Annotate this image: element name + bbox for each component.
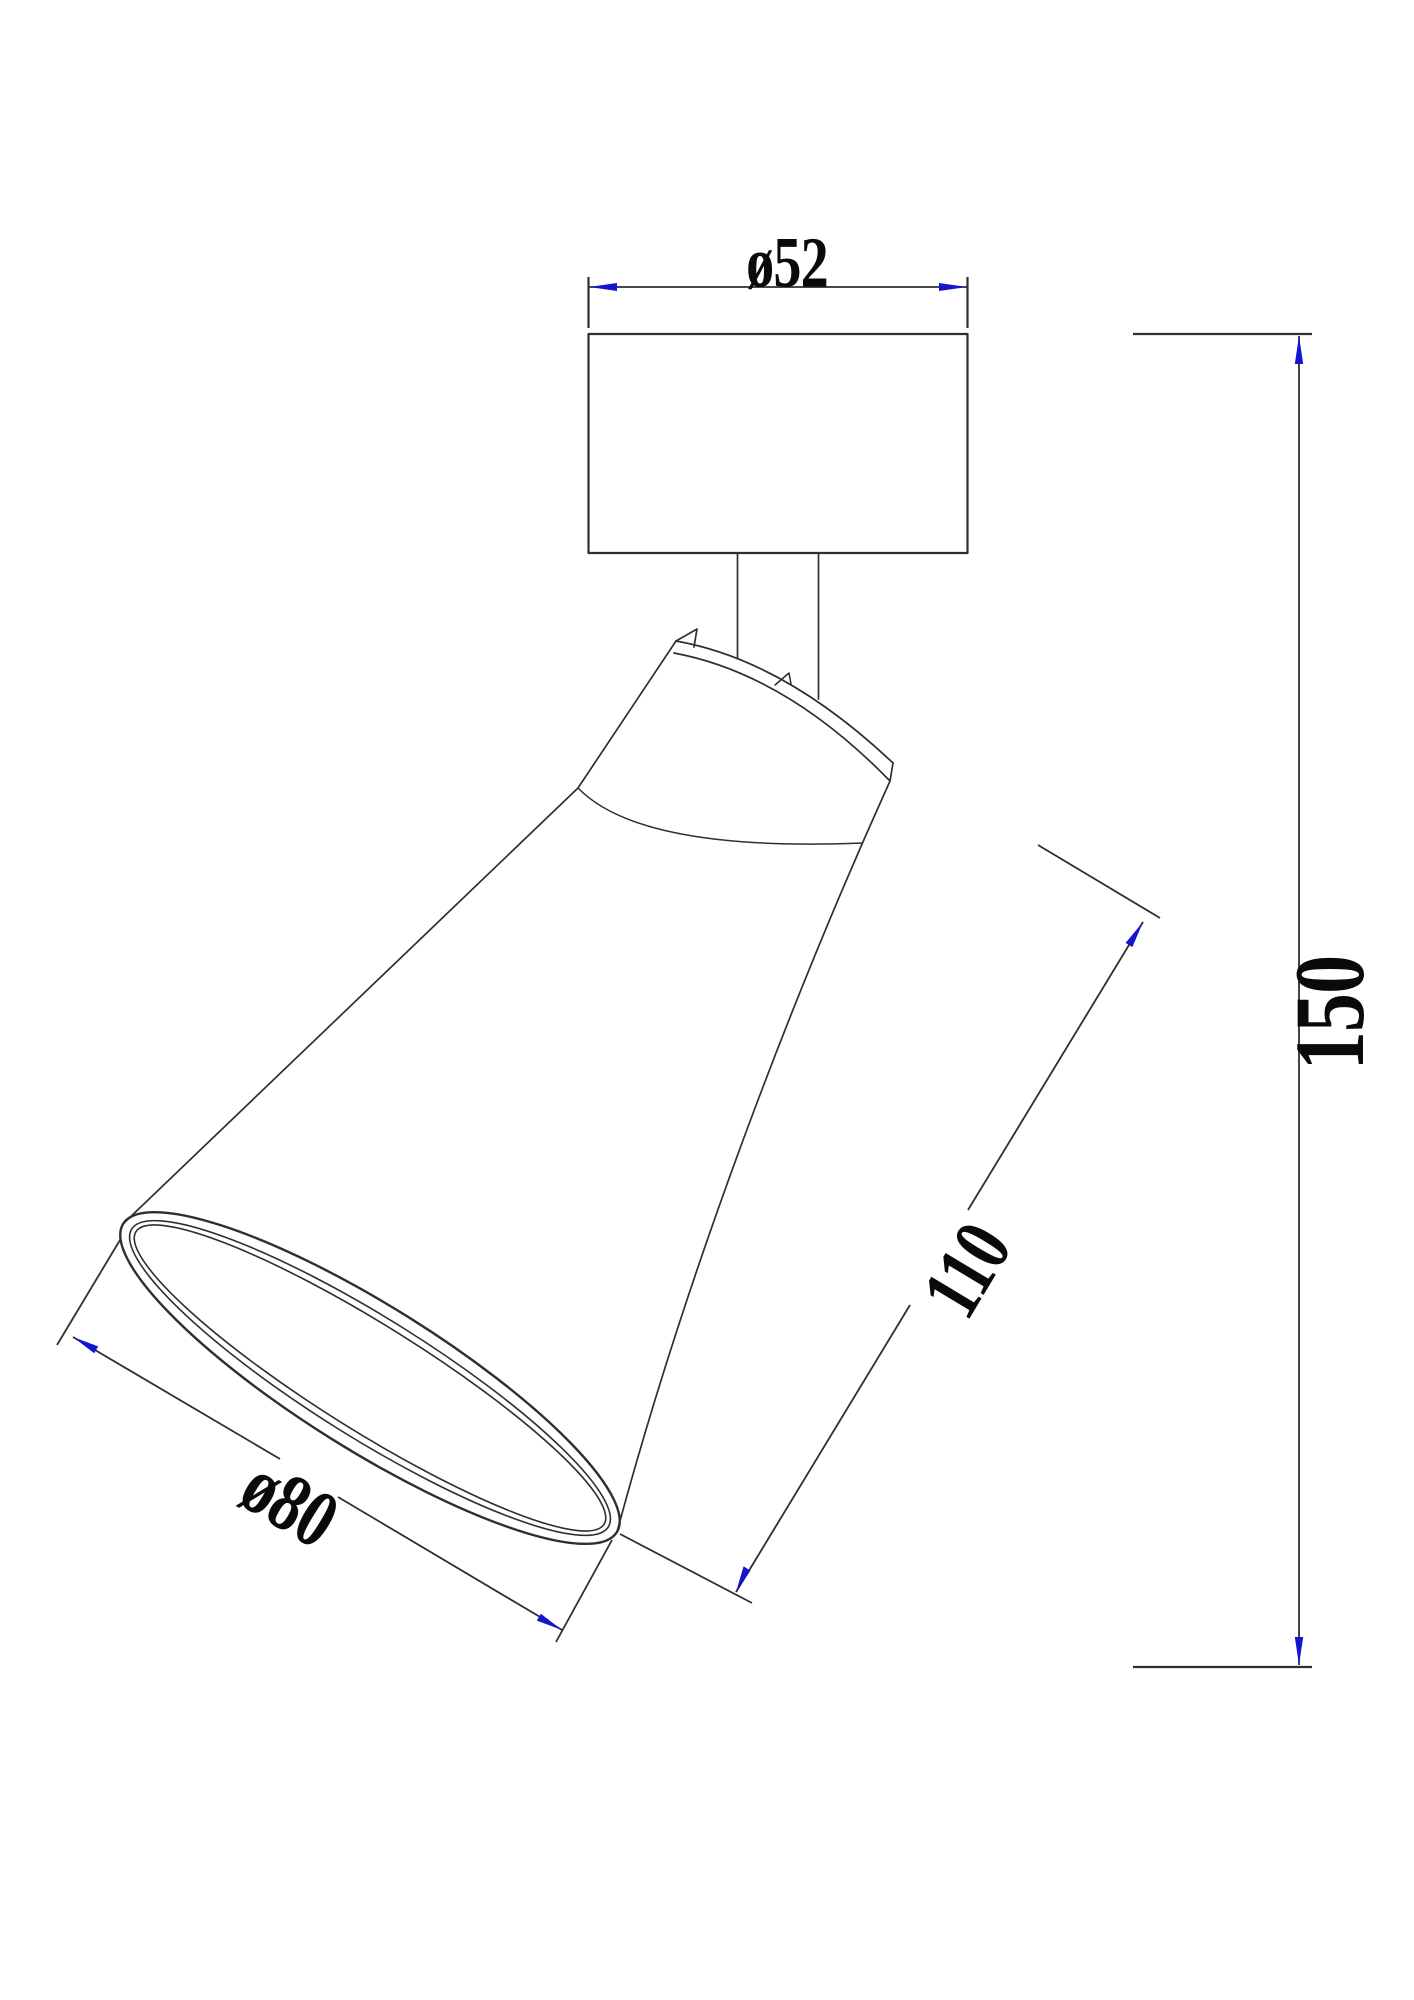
dim150-arrow-bottom-icon xyxy=(1295,1637,1303,1665)
dim-label-head-length: 110 xyxy=(904,1208,1029,1332)
opening-mid-rim xyxy=(100,1178,640,1578)
dim110-ext-bottom xyxy=(620,1534,752,1603)
collar-top-edge xyxy=(676,641,893,763)
collar-left-notch xyxy=(676,629,697,647)
shade-left-silhouette xyxy=(123,641,676,1224)
dim-label-overall-height: 150 xyxy=(1275,956,1385,1071)
dimension-arrowheads xyxy=(73,283,1303,1665)
shade-right-silhouette xyxy=(617,781,890,1532)
dim110-arrow-bottom-icon xyxy=(736,1566,750,1592)
dimension-labels: ø52 150 110 ø80 xyxy=(226,222,1385,1565)
dim110-line-lower xyxy=(736,1305,910,1592)
shade-opening xyxy=(85,1163,655,1594)
dim52-arrow-left-icon xyxy=(589,283,617,291)
dim110-arrow-top-icon xyxy=(1126,922,1143,947)
dim80-arrow-right-icon xyxy=(537,1614,562,1630)
dim80-ext-right xyxy=(556,1540,612,1642)
dim150-arrow-top-icon xyxy=(1295,336,1303,364)
fixture-outline xyxy=(85,334,967,1593)
dim110-line-upper xyxy=(968,922,1143,1210)
dim-label-opening-diameter: ø80 xyxy=(226,1439,353,1566)
dim52-arrow-right-icon xyxy=(939,283,967,291)
dim80-line-upper xyxy=(73,1337,280,1459)
dim80-arrow-left-icon xyxy=(73,1337,98,1353)
shade-top-ring xyxy=(578,788,862,844)
drawing-canvas: ø52 150 110 ø80 xyxy=(0,0,1414,2000)
dim-label-canopy-diameter: ø52 xyxy=(746,222,828,302)
dim110-ext-top xyxy=(1038,845,1160,918)
collar-bevel-edge xyxy=(674,653,890,781)
dimension-lines xyxy=(57,277,1312,1667)
technical-drawing: ø52 150 110 ø80 xyxy=(0,0,1414,2000)
dim80-line-lower xyxy=(338,1497,562,1630)
collar-right-corner xyxy=(890,763,893,781)
opening-inner-rim xyxy=(108,1187,632,1569)
canopy-rect xyxy=(589,334,968,553)
dim80-ext-left xyxy=(57,1240,120,1345)
